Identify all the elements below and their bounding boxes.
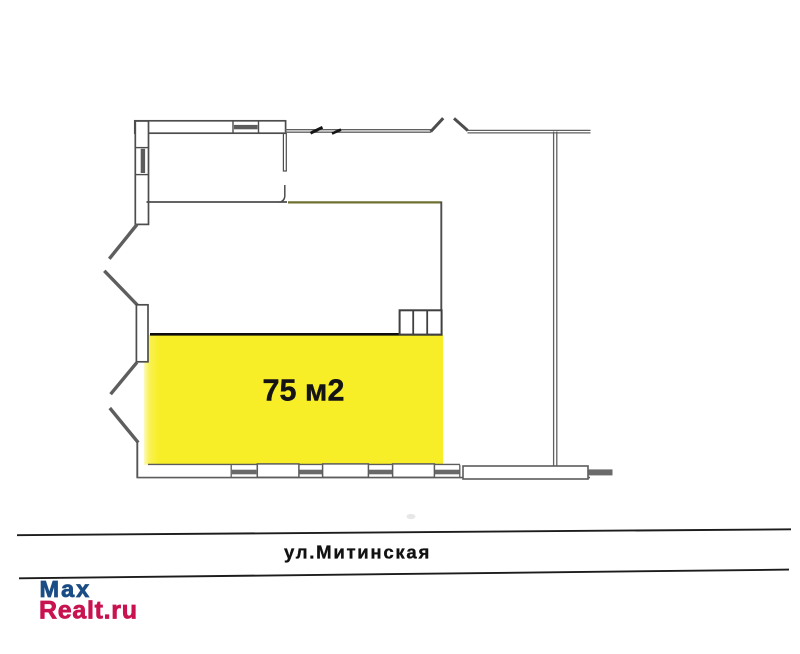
svg-text:ул.Митинская: ул.Митинская bbox=[284, 542, 431, 563]
svg-text:75 м2: 75 м2 bbox=[263, 373, 345, 407]
svg-text:Realt.ru: Realt.ru bbox=[39, 597, 138, 625]
